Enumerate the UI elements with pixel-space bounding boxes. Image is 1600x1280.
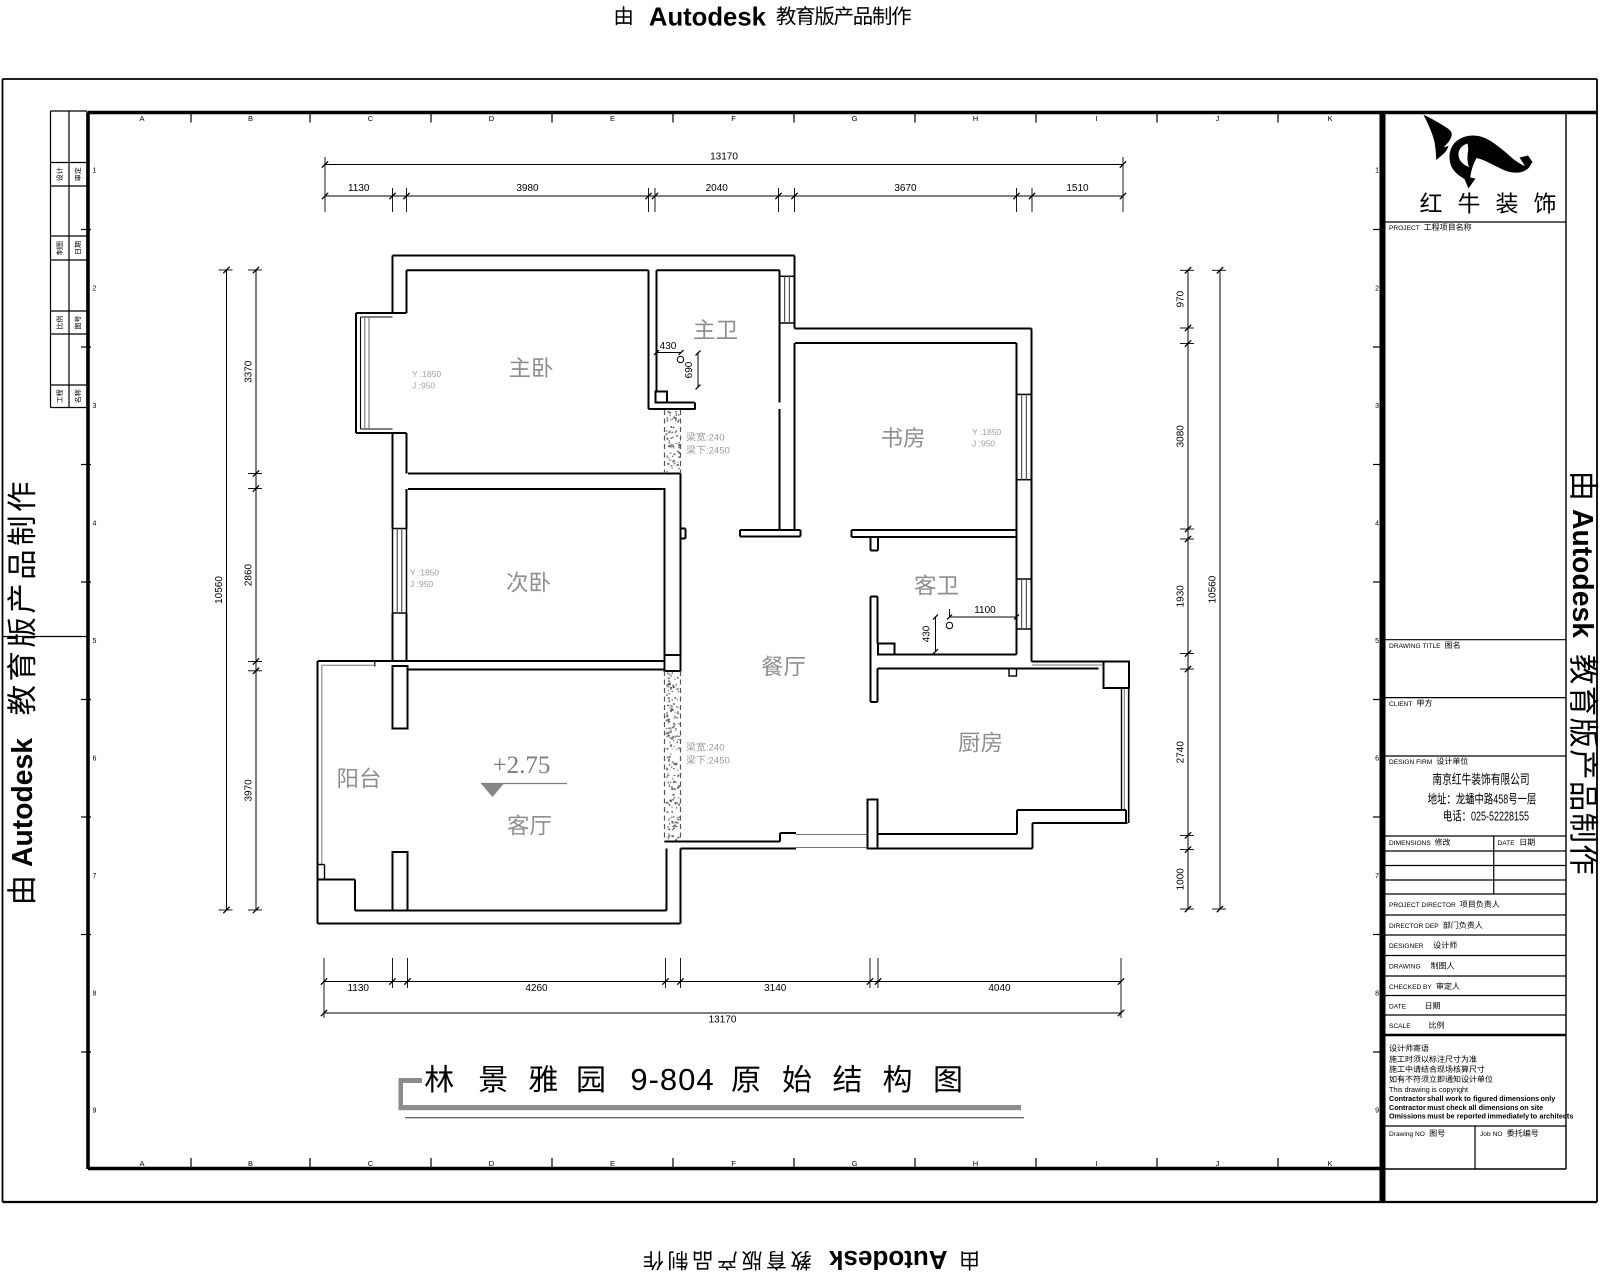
svg-text:458: 458 [1493,793,1508,807]
svg-text:Autodesk: Autodesk [6,738,38,867]
svg-text:NO: NO [1415,1131,1425,1138]
svg-text:2: 2 [93,286,97,293]
svg-text:1: 1 [93,168,97,175]
svg-text:J: J [1216,1159,1220,1168]
svg-text:5: 5 [1375,638,1379,645]
svg-text:E: E [610,114,615,123]
svg-text:DESIGN: DESIGN [1389,759,1415,766]
svg-text:DATE: DATE [1389,1004,1407,1011]
svg-text:G: G [852,1159,858,1168]
svg-text:DATE: DATE [1498,840,1516,847]
svg-text:SCALE: SCALE [1389,1023,1411,1030]
svg-text:4260: 4260 [525,983,548,994]
svg-text:J: J [1216,114,1220,123]
svg-text:I: I [1095,114,1097,123]
svg-text:5: 5 [93,638,97,645]
svg-text:1510: 1510 [1066,183,1089,194]
svg-text:3: 3 [93,403,97,410]
svg-text:G: G [852,114,858,123]
svg-text:430: 430 [922,625,933,642]
svg-text:Drawing: Drawing [1389,1131,1414,1138]
svg-text:3670: 3670 [894,183,917,194]
svg-text:DIRECTOR: DIRECTOR [1422,902,1457,909]
svg-text:1000: 1000 [1176,868,1187,891]
svg-text:2: 2 [1375,286,1379,293]
svg-text:drawing: drawing [1405,1085,1430,1094]
svg-text:3370: 3370 [244,360,255,383]
svg-text:DIRECTOR: DIRECTOR [1389,923,1424,930]
svg-text:13170: 13170 [709,1015,737,1026]
svg-text:J :950: J :950 [412,381,435,391]
svg-text:8: 8 [93,991,97,998]
svg-text:BY: BY [1423,984,1432,991]
svg-text:3970: 3970 [244,779,255,802]
svg-text:to: to [1530,1112,1537,1121]
svg-text:architects: architects [1539,1112,1573,1121]
svg-text::2450: :2450 [706,446,730,457]
svg-text:figured: figured [1473,1094,1497,1103]
svg-text:13170: 13170 [710,152,738,163]
svg-text:I: I [1095,1159,1097,1168]
svg-text:K: K [1327,114,1332,123]
svg-text:H: H [973,114,978,123]
svg-text:9-804: 9-804 [630,1062,714,1097]
svg-text:B: B [248,114,253,123]
svg-text:CLIENT: CLIENT [1389,701,1412,708]
svg-text:shall: shall [1427,1094,1443,1103]
svg-text:F: F [731,1159,736,1168]
svg-text:J :950: J :950 [410,579,433,589]
svg-text:Autodesk: Autodesk [829,1245,948,1275]
svg-text:DRAWING: DRAWING [1389,643,1421,650]
svg-text:C: C [368,1159,374,1168]
svg-text:PROJECT: PROJECT [1389,225,1420,232]
svg-text:PROJECT: PROJECT [1389,902,1420,909]
svg-text:2740: 2740 [1176,741,1187,764]
svg-text:Omissions: Omissions [1389,1112,1426,1121]
svg-text::240: :240 [706,433,725,444]
svg-text:only: only [1541,1094,1556,1103]
svg-text:DEP: DEP [1425,923,1439,930]
svg-text:K: K [1327,1159,1332,1168]
svg-text:10560: 10560 [214,576,225,604]
svg-text:1930: 1930 [1176,585,1187,608]
svg-text:6: 6 [1375,756,1379,763]
svg-text:7: 7 [93,873,97,880]
svg-text:Job: Job [1480,1131,1491,1138]
svg-text:7: 7 [1375,873,1379,880]
svg-text:FIRM: FIRM [1416,759,1432,766]
svg-text:970: 970 [1176,290,1187,307]
svg-text:TITLE: TITLE [1423,643,1442,650]
svg-text::2450: :2450 [706,756,730,767]
svg-text:This: This [1389,1085,1403,1094]
svg-text:be: be [1446,1112,1454,1121]
svg-text:DESIGNER: DESIGNER [1389,943,1424,950]
svg-text:H: H [973,1159,978,1168]
svg-text:Y :1850: Y :1850 [410,568,439,578]
svg-text:DRAWING: DRAWING [1389,964,1421,971]
svg-text:Y :1850: Y :1850 [412,369,441,379]
svg-text:3140: 3140 [764,983,787,994]
svg-text:B: B [248,1159,253,1168]
svg-text:Autodesk: Autodesk [649,3,767,31]
svg-text:NO: NO [1493,1131,1503,1138]
svg-text:4040: 4040 [988,983,1011,994]
svg-text:Contractor: Contractor [1389,1094,1426,1103]
svg-text:690: 690 [684,361,695,378]
svg-text:C: C [368,114,374,123]
svg-text:1: 1 [1375,168,1379,175]
svg-text:A: A [139,114,144,123]
svg-text:+2.75: +2.75 [493,752,551,779]
svg-text:J :950: J :950 [972,439,995,449]
svg-text:Autodesk: Autodesk [1567,509,1599,638]
svg-text:CHECKED: CHECKED [1389,984,1421,991]
svg-text:3: 3 [1375,403,1379,410]
svg-text:DIMENSIONS: DIMENSIONS [1389,840,1431,847]
svg-text:is: is [1431,1085,1437,1094]
svg-text:4: 4 [1375,521,1379,528]
svg-text:work: work [1444,1094,1462,1103]
svg-text:to: to [1464,1094,1471,1103]
svg-text:4: 4 [93,521,97,528]
svg-text:1100: 1100 [974,605,996,616]
svg-text:F: F [731,114,736,123]
svg-text:D: D [489,1159,495,1168]
svg-text:dimensions: dimensions [1499,1094,1539,1103]
svg-text:2860: 2860 [244,563,255,586]
svg-text:immediately: immediately [1488,1112,1530,1121]
svg-text:Y :1850: Y :1850 [972,427,1001,437]
svg-text::240: :240 [706,743,725,754]
svg-text:3080: 3080 [1176,425,1187,448]
svg-text:10560: 10560 [1208,575,1219,603]
svg-text:must: must [1427,1112,1445,1121]
svg-text:1130: 1130 [347,983,369,994]
svg-text:2040: 2040 [706,183,729,194]
svg-text:6: 6 [93,756,97,763]
svg-text:8: 8 [1375,991,1379,998]
svg-text:copyright: copyright [1439,1085,1468,1094]
svg-text:reported: reported [1457,1112,1486,1121]
svg-text:D: D [489,114,495,123]
svg-text:9: 9 [1375,1108,1379,1115]
svg-text:1130: 1130 [348,183,370,194]
svg-text:3980: 3980 [516,183,539,194]
svg-text:025-52228155: 025-52228155 [1471,810,1529,824]
svg-text:9: 9 [93,1108,97,1115]
svg-text:A: A [139,1159,144,1168]
svg-text:E: E [610,1159,615,1168]
svg-text:430: 430 [660,341,677,352]
